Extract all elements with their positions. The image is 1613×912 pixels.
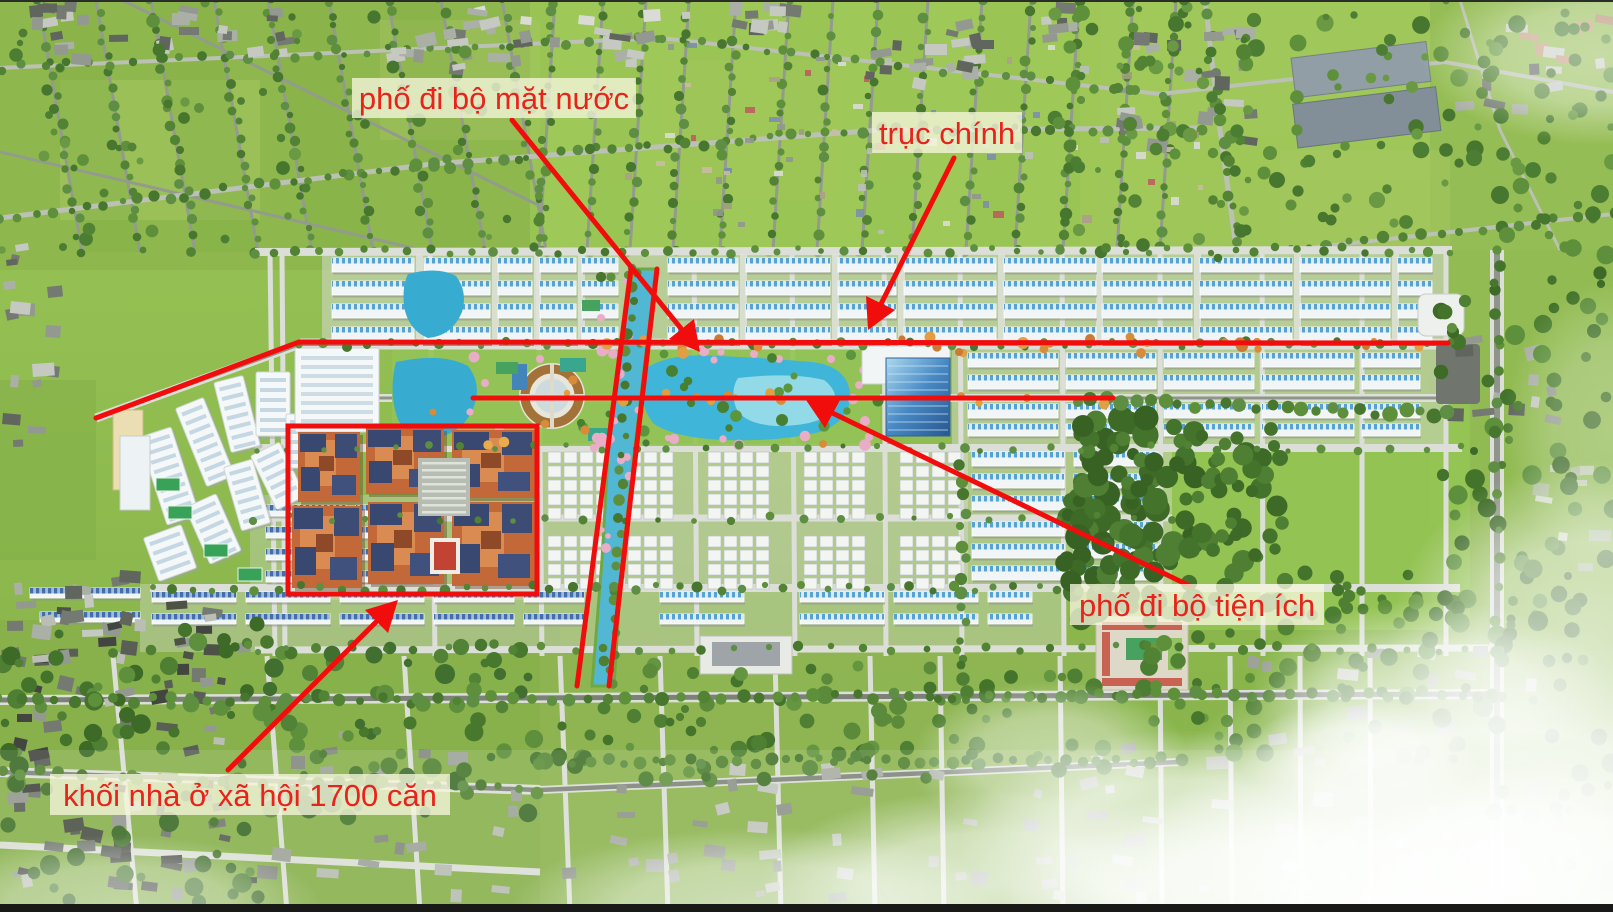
svg-text:trục chính: trục chính bbox=[879, 116, 1015, 151]
svg-text:phố đi bộ mặt nước: phố đi bộ mặt nước bbox=[359, 81, 629, 116]
svg-text:phố đi bộ tiện ích: phố đi bộ tiện ích bbox=[1079, 588, 1315, 623]
svg-text:khối nhà ở xã hội 1700 căn: khối nhà ở xã hội 1700 căn bbox=[63, 778, 437, 813]
